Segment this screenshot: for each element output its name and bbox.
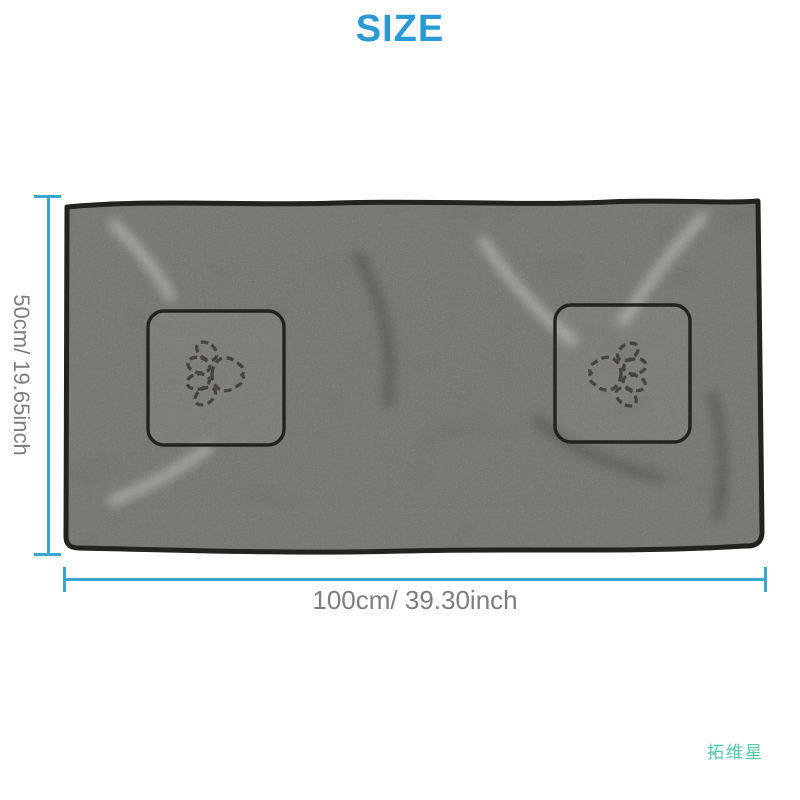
height-dimension-label: 50cm/ 19.65inch [8,294,34,455]
page-title: SIZE [0,8,800,51]
width-dimension-label: 100cm/ 39.30inch [63,585,767,616]
towel-image [58,196,768,562]
height-dimension-line [47,197,50,553]
left-pocket [148,311,284,445]
height-dimension-cap-top [34,195,61,198]
right-pocket [555,305,690,442]
size-chart-page: SIZE [0,0,800,800]
height-dimension-cap-bottom [34,553,61,556]
brand-watermark: 拓维星 [707,738,764,763]
width-dimension-line [63,578,767,581]
towel-svg [58,196,768,562]
